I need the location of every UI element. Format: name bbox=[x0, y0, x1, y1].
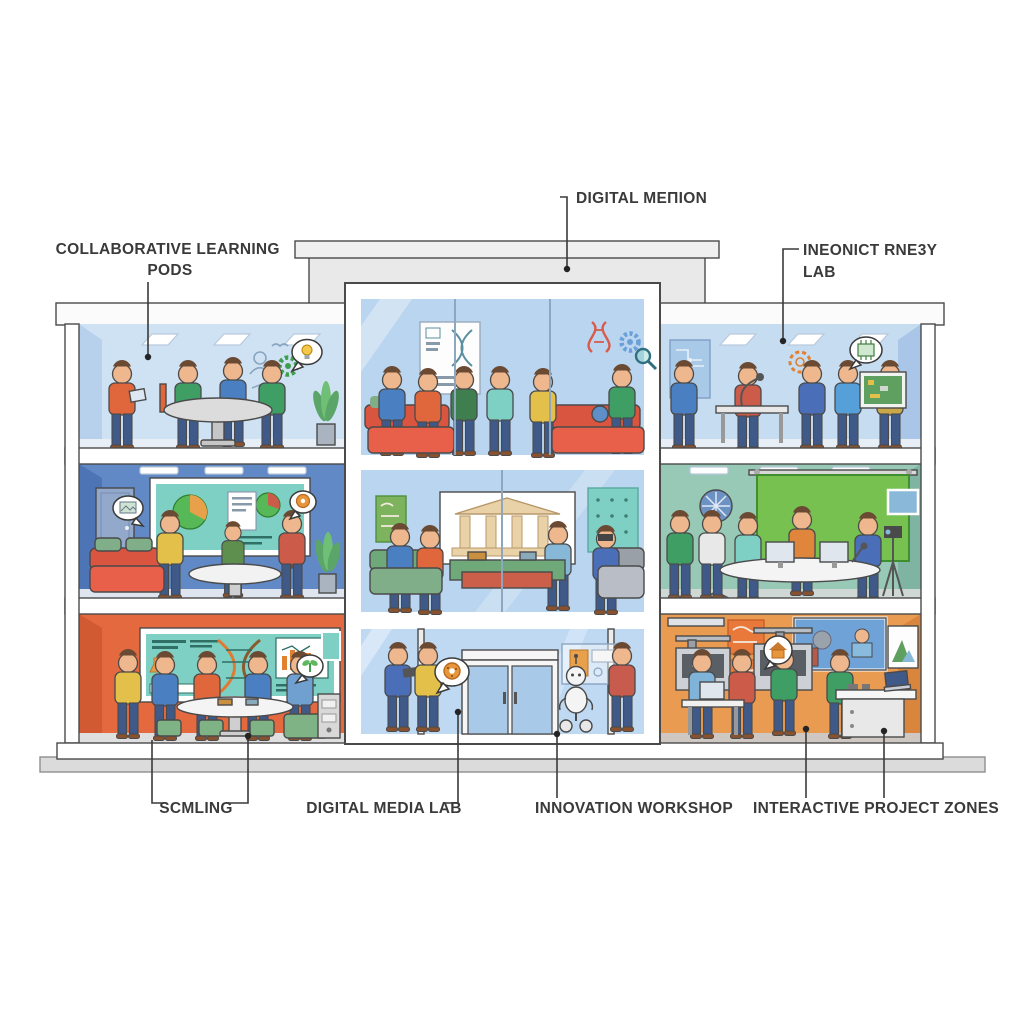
stool bbox=[250, 720, 274, 736]
double-doors bbox=[462, 650, 558, 734]
tablet bbox=[129, 389, 146, 402]
vr-headset bbox=[598, 534, 613, 541]
label-ineonict-rne3y-lab: INEONICT RNE3Y LAB bbox=[803, 242, 942, 281]
room-scmling-science bbox=[79, 614, 345, 743]
atrium-top-lounge bbox=[361, 299, 656, 458]
room-collaborative-learning-pods bbox=[79, 324, 345, 450]
couch-seat bbox=[368, 427, 454, 453]
base-slab bbox=[57, 743, 943, 759]
leader-dot bbox=[145, 354, 151, 360]
stool bbox=[157, 720, 181, 736]
entrance-lobby bbox=[361, 629, 644, 734]
leader-dot bbox=[245, 733, 251, 739]
microphone bbox=[861, 543, 868, 550]
monitor bbox=[700, 682, 724, 699]
monitor bbox=[766, 542, 794, 562]
label-digital-media-lab: DIGITAL MEDIA LAB bbox=[306, 800, 462, 817]
leader-dot bbox=[780, 338, 786, 344]
laptop bbox=[883, 671, 911, 692]
building-cutaway-illustration: COLLABORATIVE LEARNING PODS DIGITAL MEΠI… bbox=[0, 0, 1024, 1024]
couch-seat bbox=[370, 568, 442, 594]
couch-seat bbox=[90, 566, 164, 592]
room-presentation-lounge bbox=[79, 464, 345, 600]
room-interactive-project-zones bbox=[660, 614, 921, 743]
pillow bbox=[592, 406, 608, 422]
leader-dot bbox=[803, 726, 809, 732]
label-interactive-project-zones: INTERACTIVE PROJECT ZONES bbox=[753, 800, 999, 817]
label-scmling: SCMLING bbox=[159, 800, 233, 817]
wall-poster bbox=[322, 632, 340, 660]
glass-atrium bbox=[345, 283, 660, 744]
room-video-studio bbox=[660, 464, 921, 602]
sofa-seat bbox=[598, 566, 644, 598]
leader-dot bbox=[455, 709, 461, 715]
left-wall bbox=[65, 324, 79, 743]
leader-dot bbox=[554, 731, 560, 737]
label-collaborative-learning-pods: COLLABORATIVE LEARNING PODS bbox=[56, 241, 285, 279]
circuit-board-panel bbox=[860, 372, 906, 408]
monitor bbox=[820, 542, 848, 562]
illustration-canvas: COLLABORATIVE LEARNING PODS DIGITAL MEΠI… bbox=[0, 0, 1024, 1024]
couch-seat bbox=[552, 427, 644, 453]
label-innovation-workshop: INNOVATION WORKSHOP bbox=[535, 800, 733, 817]
atrium-middle-lounge bbox=[361, 470, 644, 615]
room-ineonict-rne3y-lab bbox=[660, 324, 921, 452]
wall-frame bbox=[888, 490, 918, 514]
label-digital-metion: DIGITAL MEΠION bbox=[576, 190, 707, 207]
leader-dot bbox=[881, 728, 887, 734]
leader-dot bbox=[564, 266, 570, 272]
ceiling-vent bbox=[668, 618, 724, 626]
right-wall bbox=[921, 324, 935, 743]
cabinet-machine bbox=[318, 694, 340, 738]
